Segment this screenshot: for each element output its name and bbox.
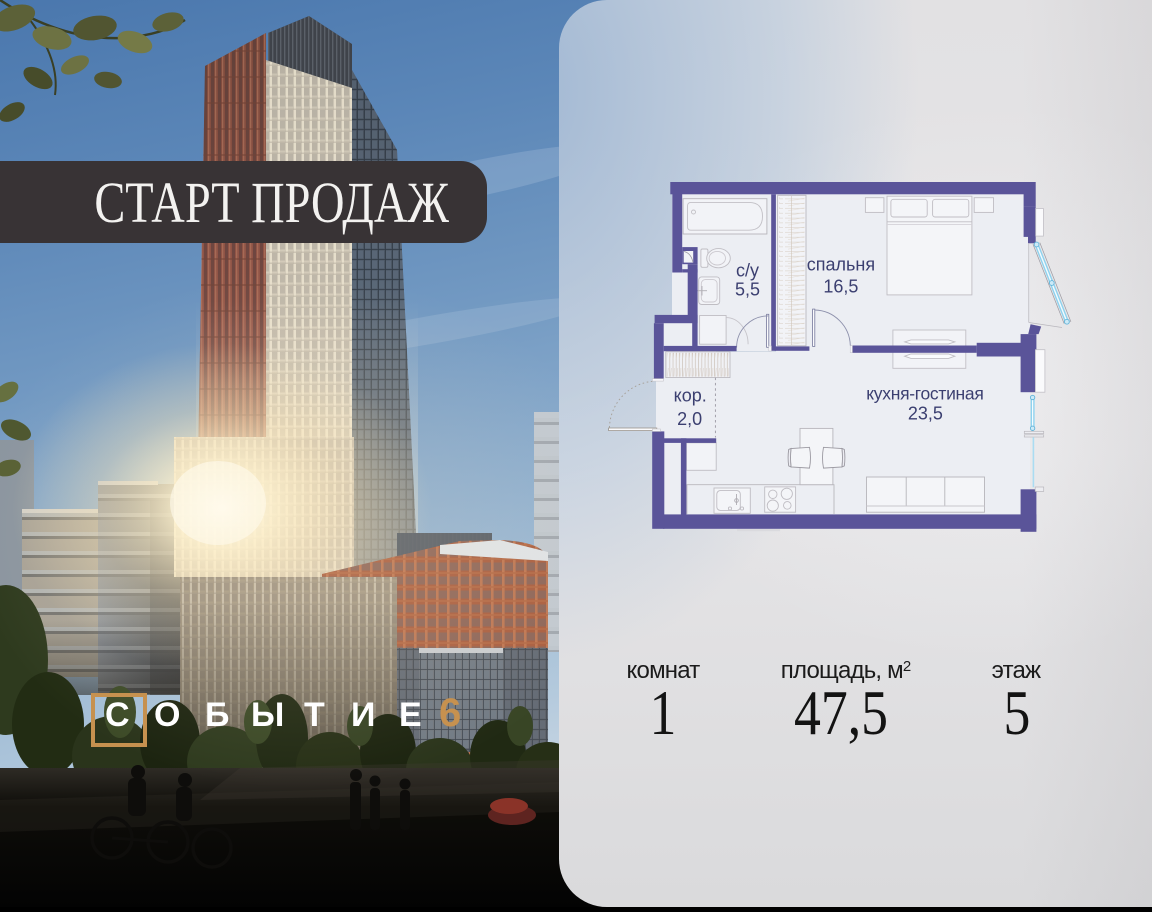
- svg-text:16,5: 16,5: [823, 276, 858, 296]
- svg-text:кухня-гостиная: кухня-гостиная: [866, 384, 983, 404]
- svg-text:23,5: 23,5: [908, 404, 943, 424]
- svg-text:кор.: кор.: [674, 386, 707, 406]
- svg-text:спальня: спальня: [807, 255, 875, 275]
- svg-text:с/у: с/у: [736, 261, 759, 281]
- svg-text:2,0: 2,0: [677, 409, 702, 429]
- svg-text:5,5: 5,5: [735, 280, 760, 300]
